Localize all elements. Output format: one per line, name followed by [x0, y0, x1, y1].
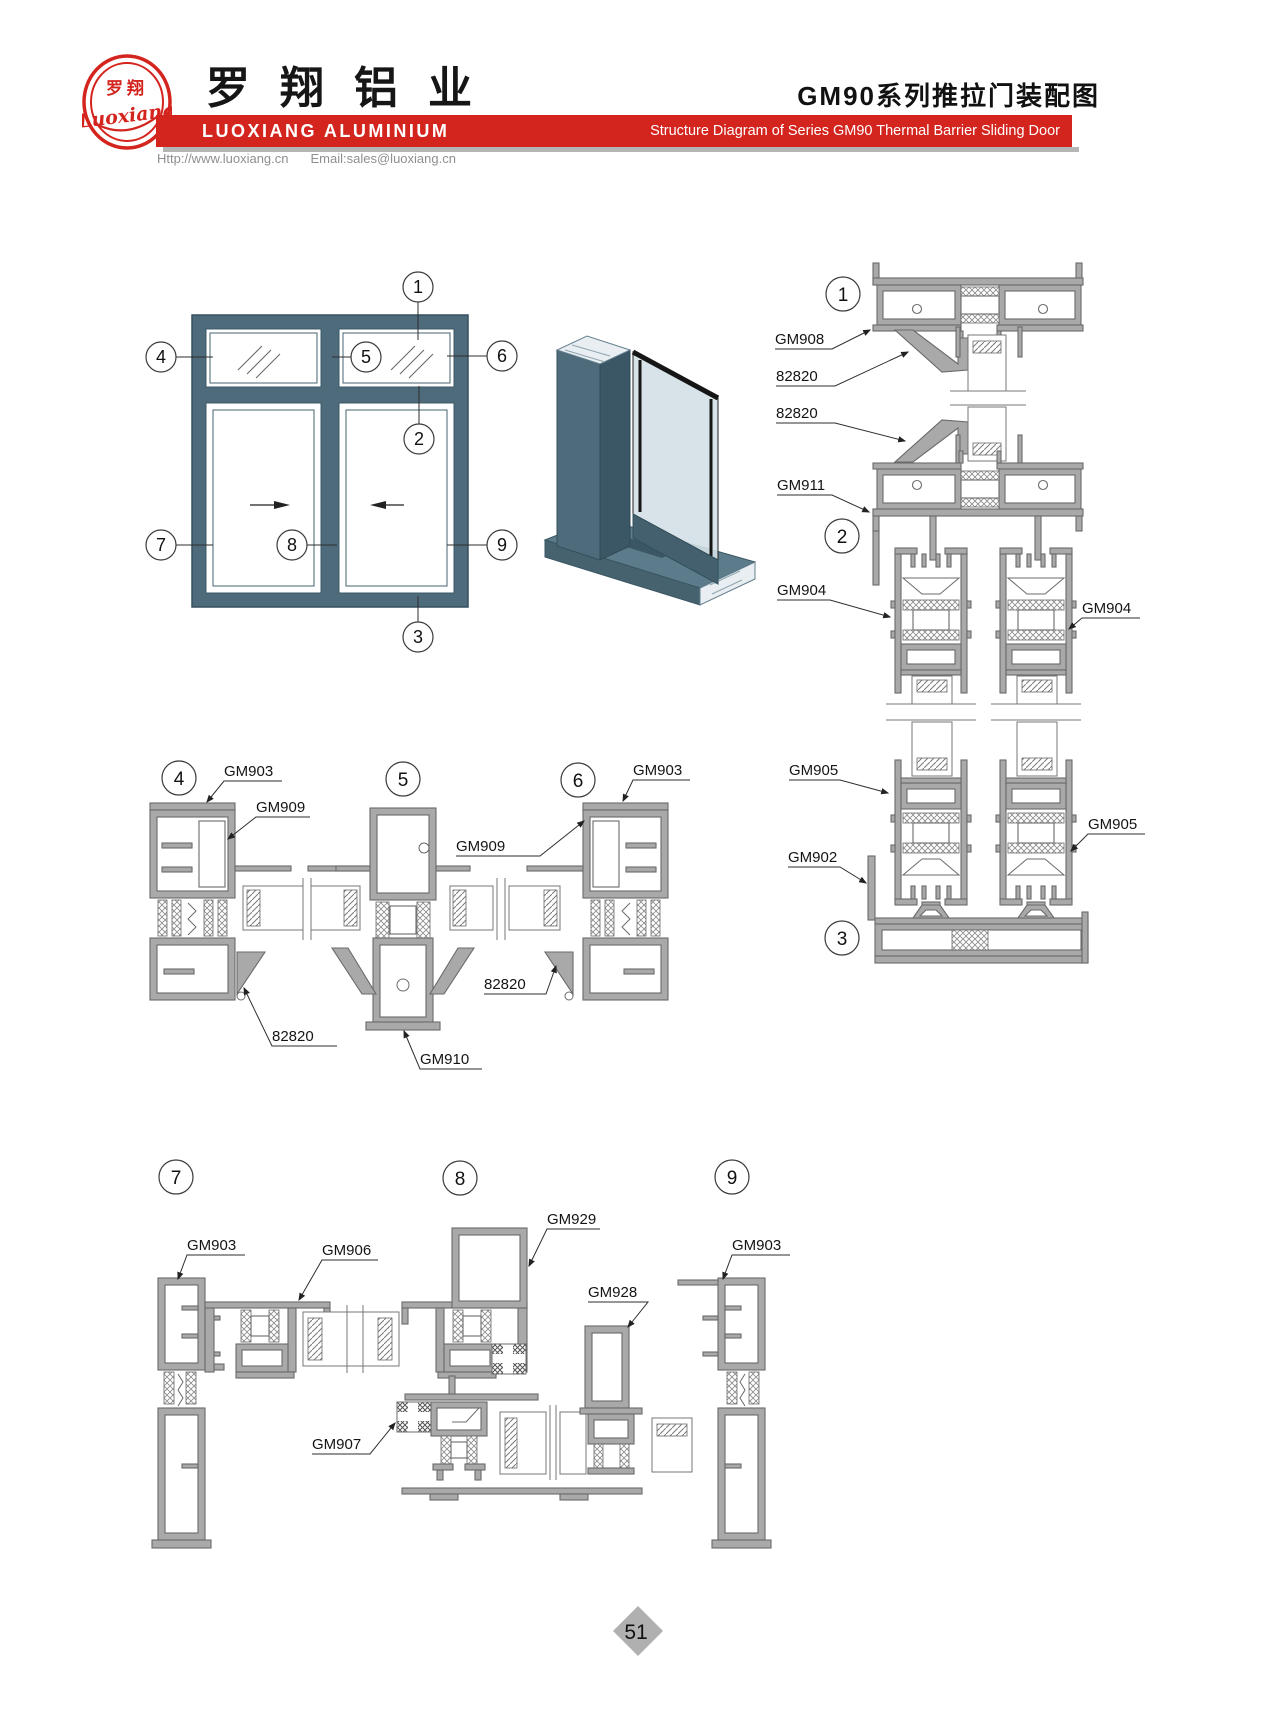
elevation-diagram: 1 2 3 4 5 6 7 8 9 [146, 272, 517, 652]
company-name-cn: 罗翔铝业 [206, 52, 502, 116]
callout-number: 2 [414, 429, 424, 449]
elevation-callout-9: 9 [487, 530, 517, 560]
callout-number: 3 [413, 627, 423, 647]
part-label-gm910: GM910 [420, 1051, 469, 1068]
elevation-callout-8: 8 [277, 530, 307, 560]
part-label-gm909: GM909 [456, 838, 505, 855]
part-label-gm909: GM909 [256, 799, 305, 816]
doc-title-en: Structure Diagram of Series GM90 Thermal… [650, 123, 1060, 139]
part-label-gm929: GM929 [547, 1211, 596, 1228]
section-callout-5: 5 [386, 762, 420, 796]
callout-number: 4 [156, 347, 166, 367]
callout-number: 5 [398, 770, 409, 791]
elevation-callout-1: 1 [403, 272, 433, 302]
section-callout-8: 8 [443, 1161, 477, 1195]
callout-number: 8 [287, 535, 297, 555]
part-label-gm905: GM905 [1088, 816, 1137, 833]
page-number-diamond: 51 [613, 1606, 663, 1656]
logo-text-cn: 罗翔 [106, 78, 148, 98]
header-banner: LUOXIANG ALUMINIUM Structure Diagram of … [156, 115, 1072, 147]
callout-number: 7 [171, 1168, 182, 1189]
isometric-profile-view [545, 336, 755, 605]
part-label-gm904: GM904 [1082, 600, 1131, 617]
section-callout-6: 6 [561, 763, 595, 797]
website-url: Http://www.luoxiang.cn [157, 151, 289, 166]
callout-number: 9 [497, 535, 507, 555]
elevation-callout-2: 2 [404, 424, 434, 454]
catalog-page: 罗翔 Luoxiang 罗翔铝业 LUOXIANG ALUMINIUM Stru… [0, 0, 1277, 1721]
section-callout-3: 3 [825, 921, 859, 955]
callout-number: 9 [727, 1168, 738, 1189]
detail-sections-1-2-3 [868, 263, 1088, 963]
section-callout-1: 1 [826, 277, 860, 311]
part-label-82820: 82820 [776, 405, 818, 422]
callout-number: 6 [497, 346, 507, 366]
callout-number: 1 [838, 285, 849, 306]
part-label-82820: 82820 [272, 1028, 314, 1045]
callout-number: 4 [174, 769, 185, 790]
part-label-gm905: GM905 [789, 762, 838, 779]
part-label-gm908: GM908 [775, 331, 824, 348]
part-label-gm928: GM928 [588, 1284, 637, 1301]
part-label-gm904: GM904 [777, 582, 826, 599]
callout-number: 6 [573, 771, 584, 792]
section-callout-4: 4 [162, 761, 196, 795]
assembly-drawing: 1 2 3 4 5 6 7 8 9 [0, 170, 1277, 1721]
page-number: 51 [624, 1621, 647, 1644]
elevation-callout-5: 5 [351, 342, 381, 372]
elevation-callout-7: 7 [146, 530, 176, 560]
doc-title-cn: GM90系列推拉门装配图 [797, 76, 1100, 113]
contact-line: Http://www.luoxiang.cn Email:sales@luoxi… [157, 151, 456, 166]
elevation-callout-6: 6 [487, 341, 517, 371]
callout-number: 3 [837, 929, 848, 950]
elevation-callout-3: 3 [403, 622, 433, 652]
callout-number: 8 [455, 1169, 466, 1190]
detail-sections-4-5-6 [150, 803, 668, 1030]
callout-number: 7 [156, 535, 166, 555]
section-callout-7: 7 [159, 1160, 193, 1194]
part-label-gm903: GM903 [633, 762, 682, 779]
part-label-gm902: GM902 [788, 849, 837, 866]
company-name-en: LUOXIANG ALUMINIUM [202, 121, 449, 142]
callout-number: 2 [837, 527, 848, 548]
section-callout-9: 9 [715, 1160, 749, 1194]
detail-sections-7-8-9 [152, 1228, 771, 1548]
part-label-gm903: GM903 [187, 1237, 236, 1254]
part-label-gm911: GM911 [777, 477, 825, 494]
email-address: Email:sales@luoxiang.cn [311, 151, 456, 166]
elevation-callout-4: 4 [146, 342, 176, 372]
part-label-gm907: GM907 [312, 1436, 361, 1453]
part-label-gm906: GM906 [322, 1242, 371, 1259]
callout-number: 1 [413, 277, 423, 297]
section-callout-2: 2 [825, 519, 859, 553]
part-label-82820: 82820 [484, 976, 526, 993]
part-label-82820: 82820 [776, 368, 818, 385]
part-label-gm903: GM903 [732, 1237, 781, 1254]
callout-number: 5 [361, 347, 371, 367]
part-label-gm903: GM903 [224, 763, 273, 780]
